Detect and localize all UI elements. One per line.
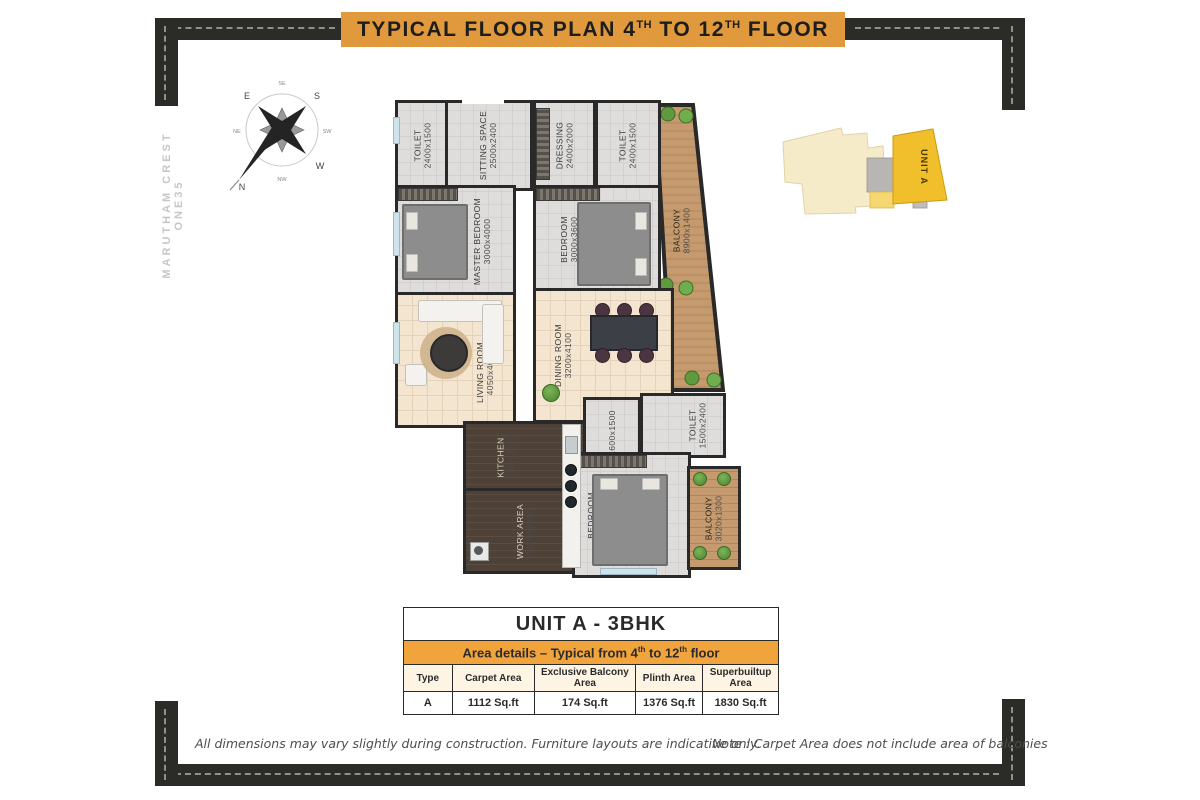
pillow bbox=[642, 478, 660, 490]
frame-bottom-left-vertical bbox=[155, 701, 178, 786]
floor-plan: BALCONY8900x1400 TOILET2400x1500 SITTING… bbox=[390, 72, 770, 587]
room-sitting-space: SITTING SPACE2500x2400 bbox=[445, 100, 533, 191]
svg-text:E: E bbox=[244, 91, 250, 101]
dining-chair bbox=[617, 348, 632, 363]
room-toilet-3: TOILET1500x2400 bbox=[640, 393, 726, 458]
kitchen-sink bbox=[565, 436, 578, 454]
svg-text:NW: NW bbox=[277, 177, 287, 183]
dining-table bbox=[590, 315, 658, 351]
frame-top-left-vertical bbox=[155, 18, 178, 106]
title-text: TYPICAL FLOOR PLAN 4TH TO 12TH FLOOR bbox=[357, 18, 829, 42]
plant bbox=[693, 546, 707, 560]
window bbox=[393, 212, 400, 256]
cell-type: A bbox=[404, 692, 453, 714]
plant bbox=[717, 546, 731, 560]
compass-icon: E S SE NE SW W NW N bbox=[225, 68, 343, 196]
area-details-subtitle: Area details – Typical from 4th to 12th … bbox=[404, 641, 778, 665]
frame-top-right-vertical bbox=[1002, 18, 1025, 110]
frame-bottom-horizontal bbox=[155, 764, 1025, 786]
frame-dash bbox=[165, 27, 335, 29]
unit-area-table: UNIT A - 3BHK Area details – Typical fro… bbox=[403, 607, 779, 715]
col-header-exclusive-balcony-area: Exclusive Balcony Area bbox=[535, 665, 636, 692]
cell-exclusive-balcony-area: 174 Sq.ft bbox=[535, 692, 636, 714]
svg-text:SW: SW bbox=[323, 129, 333, 135]
svg-text:S: S bbox=[314, 91, 320, 101]
entry-door-opening bbox=[462, 98, 504, 104]
coffee-table bbox=[430, 334, 468, 372]
pillow bbox=[635, 258, 647, 276]
col-header-type: Type bbox=[404, 665, 453, 692]
col-header-superbuiltup-area: Superbuiltup Area bbox=[703, 665, 778, 692]
cell-plinth-area: 1376 Sq.ft bbox=[636, 692, 703, 714]
washing-machine bbox=[470, 542, 489, 561]
room-toilet-1: TOILET2400x1500 bbox=[395, 100, 451, 191]
wardrobe bbox=[398, 188, 458, 201]
pillow bbox=[406, 254, 418, 272]
key-plan-core bbox=[867, 158, 893, 192]
window bbox=[600, 568, 657, 575]
plant bbox=[717, 472, 731, 486]
key-plan-lobby bbox=[870, 192, 894, 208]
area-table-grid: Type Carpet Area Exclusive Balcony Area … bbox=[404, 665, 778, 714]
room-toilet-2: TOILET2400x1500 bbox=[595, 100, 661, 191]
svg-text:NE: NE bbox=[233, 129, 241, 135]
frame-dash bbox=[1011, 26, 1013, 104]
bed-bedroom-3 bbox=[592, 474, 668, 566]
col-header-plinth-area: Plinth Area bbox=[636, 665, 703, 692]
plant bbox=[707, 373, 721, 387]
hob-burner bbox=[565, 496, 577, 508]
title-banner: TYPICAL FLOOR PLAN 4TH TO 12TH FLOOR bbox=[341, 12, 845, 47]
frame-dash bbox=[855, 27, 1019, 29]
bed-bedroom-2 bbox=[577, 202, 651, 286]
plant bbox=[679, 109, 693, 123]
plant bbox=[679, 281, 693, 295]
window bbox=[393, 322, 400, 364]
bed-master bbox=[402, 204, 468, 280]
plant bbox=[693, 472, 707, 486]
hob-burner bbox=[565, 464, 577, 476]
wardrobe bbox=[575, 455, 647, 468]
cell-superbuiltup-area: 1830 Sq.ft bbox=[703, 692, 778, 714]
plant bbox=[685, 371, 699, 385]
hob-burner bbox=[565, 480, 577, 492]
frame-dash bbox=[165, 773, 1019, 775]
window bbox=[393, 117, 400, 144]
floor-plan-brochure: TYPICAL FLOOR PLAN 4TH TO 12TH FLOOR MAR… bbox=[0, 0, 1200, 800]
wardrobe bbox=[536, 188, 600, 201]
key-plan: UNIT A bbox=[775, 120, 960, 220]
dining-chair bbox=[595, 348, 610, 363]
key-plan-unit-label: UNIT A bbox=[919, 149, 929, 185]
note-carpet-area: Note : Carpet Area does not include area… bbox=[712, 736, 1048, 751]
sofa bbox=[482, 304, 504, 364]
col-header-carpet-area: Carpet Area bbox=[453, 665, 535, 692]
room-label-balcony-main: BALCONY8900x1400 bbox=[652, 190, 712, 270]
pillow bbox=[635, 212, 647, 230]
frame-top-right-horizontal bbox=[845, 18, 1025, 40]
unit-title: UNIT A - 3BHK bbox=[404, 608, 778, 641]
svg-text:W: W bbox=[316, 161, 325, 171]
plant bbox=[542, 384, 560, 402]
pillow bbox=[600, 478, 618, 490]
frame-dash bbox=[164, 26, 166, 100]
frame-top-left-horizontal bbox=[155, 18, 341, 40]
project-watermark: MARUTHAM CREST ONE35 bbox=[161, 105, 177, 305]
svg-text:SE: SE bbox=[278, 81, 286, 87]
pillow bbox=[406, 212, 418, 230]
svg-text:N: N bbox=[239, 182, 246, 192]
disclaimer-dimensions: All dimensions may vary slightly during … bbox=[195, 736, 760, 751]
wardrobe bbox=[536, 108, 550, 180]
dining-chair bbox=[639, 348, 654, 363]
cell-carpet-area: 1112 Sq.ft bbox=[453, 692, 535, 714]
plant bbox=[661, 107, 675, 121]
frame-dash bbox=[164, 709, 166, 780]
